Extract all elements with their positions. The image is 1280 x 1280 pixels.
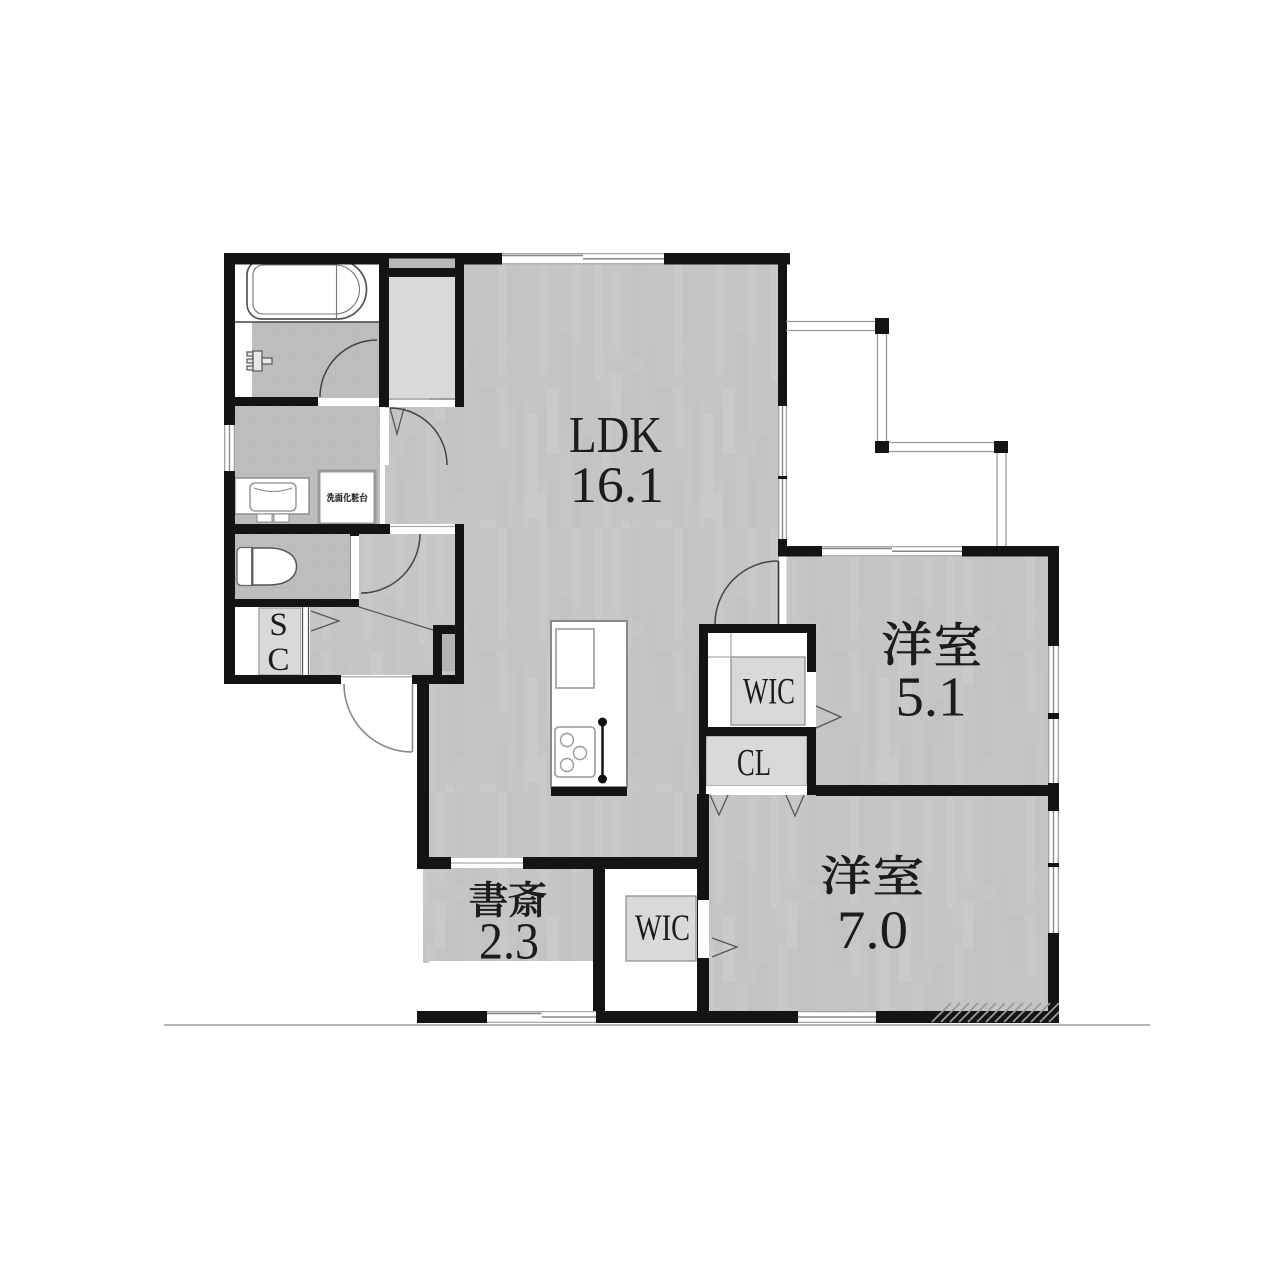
svg-text:S: S — [269, 607, 287, 643]
svg-text:7.0: 7.0 — [837, 900, 908, 960]
svg-text:LDK: LDK — [569, 407, 662, 464]
svg-text:2.3: 2.3 — [479, 914, 539, 971]
svg-text:WIC: WIC — [635, 908, 690, 949]
svg-text:C: C — [267, 642, 289, 678]
svg-text:16.1: 16.1 — [570, 458, 664, 514]
svg-text:CL: CL — [737, 742, 771, 784]
svg-text:WIC: WIC — [743, 672, 795, 713]
svg-text:5.1: 5.1 — [896, 667, 967, 729]
